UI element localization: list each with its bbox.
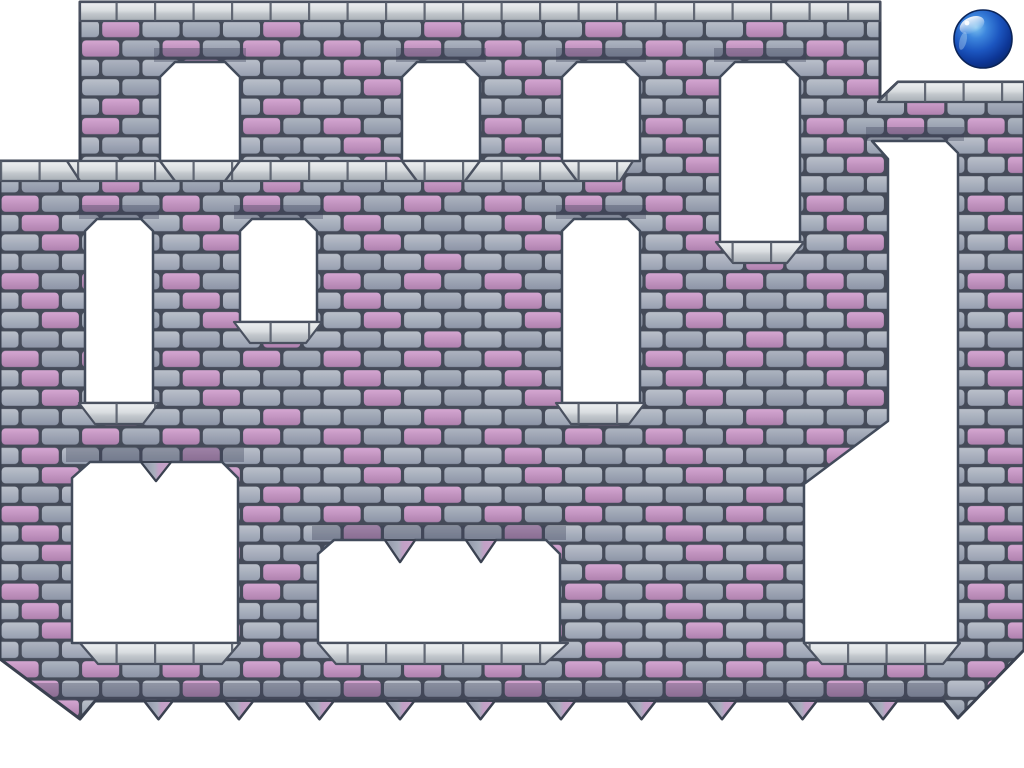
floor-spike xyxy=(869,701,897,719)
floor-spike xyxy=(708,701,736,719)
right-cap xyxy=(878,82,1024,102)
level-canvas xyxy=(0,0,1024,768)
ledge-doorway-2 xyxy=(318,643,568,664)
window-4 xyxy=(720,62,800,242)
window-3 xyxy=(562,62,640,161)
opening-top-shadow xyxy=(154,48,246,62)
floor-spike xyxy=(386,701,414,719)
ledge-right-shaft xyxy=(804,643,960,664)
floor-spike xyxy=(306,701,334,719)
ledge-doorway-1 xyxy=(80,643,240,664)
top-cap xyxy=(80,2,880,21)
opening-top-shadow xyxy=(312,526,566,540)
opening-top-shadow xyxy=(396,48,486,62)
player-ball[interactable] xyxy=(954,10,1012,68)
opening-top-shadow xyxy=(234,205,323,219)
game-screen xyxy=(0,0,1024,768)
window-2 xyxy=(402,62,480,161)
floor-spike xyxy=(225,701,253,719)
opening-top-shadow xyxy=(79,205,159,219)
window-b xyxy=(240,219,317,322)
floor-spike xyxy=(547,701,575,719)
sill-window-4 xyxy=(716,242,804,263)
opening-top-shadow xyxy=(714,48,806,62)
opening-top-shadow xyxy=(556,205,646,219)
sill-window-b xyxy=(234,322,322,343)
doorway-1 xyxy=(72,462,238,643)
sill-window-c xyxy=(556,403,645,424)
level-svg xyxy=(0,0,1024,768)
floor-spike xyxy=(628,701,656,719)
opening-top-shadow xyxy=(866,127,964,141)
window-a xyxy=(85,219,153,403)
floor-spike xyxy=(789,701,817,719)
floor-spike xyxy=(145,701,173,719)
doorway-2 xyxy=(318,540,560,643)
opening-top-shadow xyxy=(556,48,646,62)
window-1 xyxy=(160,62,240,161)
floor-spike xyxy=(467,701,495,719)
main-cap xyxy=(0,161,633,181)
window-c xyxy=(562,219,640,403)
wall-base-row-shade xyxy=(0,683,944,701)
opening-top-shadow xyxy=(66,448,244,462)
